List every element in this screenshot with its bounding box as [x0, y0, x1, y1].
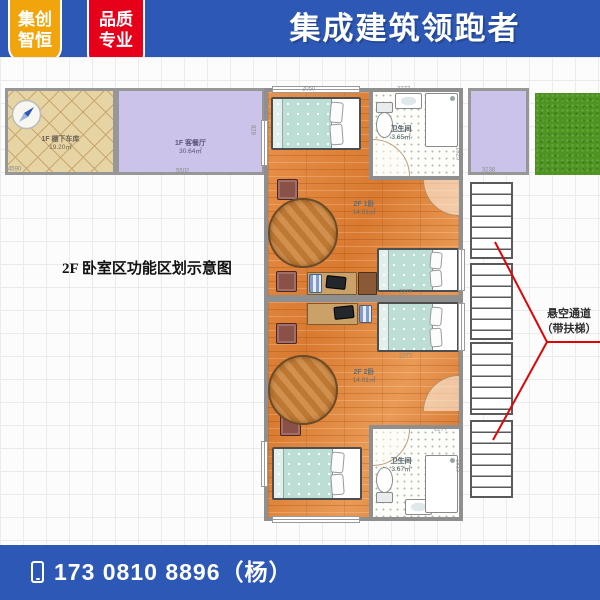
- dim-label: 2277: [399, 289, 412, 295]
- walkway-annotation: 悬空通道 （带扶梯）: [539, 307, 599, 337]
- bathroom-upper-label: 卫生间 3.65㎡: [377, 125, 425, 143]
- phone-button-dot: [36, 578, 40, 580]
- stairs-segment: [470, 182, 513, 259]
- room-bedroom2-label: 2F 2卧 14.01㎡: [326, 368, 402, 386]
- bed-lower-left: [272, 447, 362, 500]
- window: [272, 516, 360, 523]
- bathroom-lower-label: 卫生间 3.67㎡: [377, 457, 425, 475]
- chair: [277, 179, 298, 200]
- purple-strip: [468, 88, 529, 175]
- dim-label: 1825: [455, 459, 461, 472]
- footer-bar: 173 0810 8896（杨）: [0, 545, 600, 600]
- bed-fold: [379, 304, 389, 350]
- bed-pillow: [429, 306, 443, 326]
- floorplan-canvas: 2F 卧室区功能区划示意图 1F 棚下车库 19.20㎡ 1F 客餐厅 30.6…: [0, 57, 600, 545]
- door-arc-bedroom2: [423, 375, 459, 411]
- desk-chair: [359, 305, 372, 323]
- bed-pillow: [330, 451, 345, 473]
- dim-label: 2277: [434, 426, 447, 432]
- window: [458, 249, 465, 291]
- bed-upper-right: [377, 248, 459, 292]
- stairs-segment: [470, 263, 513, 340]
- bed-pillow: [329, 101, 344, 123]
- round-table: [268, 355, 338, 425]
- badge-line: 智恒: [10, 30, 60, 51]
- window: [458, 303, 465, 351]
- laptop-icon: [325, 275, 346, 290]
- shower-icon: [425, 455, 458, 513]
- room-living-label: 1F 客餐厅 30.64㎡: [119, 139, 262, 157]
- bed-lower-right: [377, 302, 459, 352]
- nightstand: [358, 272, 377, 295]
- dim-label: 3238: [482, 167, 495, 173]
- door-arc-bath-upper: [373, 139, 410, 176]
- brand-badge-jichuang: 集创 智恒: [8, 0, 62, 62]
- divider-wall: [268, 295, 459, 302]
- door-arc-bedroom1: [423, 180, 459, 216]
- room-carport: 1F 棚下车库 19.20㎡: [5, 88, 116, 175]
- badge-line: 集创: [10, 9, 60, 30]
- desk-chair: [309, 274, 322, 293]
- stairs-segment: [470, 420, 513, 498]
- bathroom-upper: 卫生间 3.65㎡: [369, 92, 459, 180]
- plan-caption: 2F 卧室区功能区划示意图: [62, 257, 232, 278]
- window: [272, 86, 360, 93]
- bed-pillow: [329, 124, 344, 145]
- sink-icon: [395, 93, 422, 109]
- room-bedroom1-label: 2F 1卧 14.01㎡: [326, 200, 402, 218]
- dim-label: 828: [250, 125, 256, 135]
- bed-fold: [273, 99, 283, 148]
- dim-label: 5502: [176, 168, 189, 174]
- dim-label: 4590: [8, 166, 21, 172]
- window: [261, 441, 268, 487]
- dim-label: 2277: [399, 353, 412, 359]
- dim-label: 2277: [397, 86, 410, 92]
- phone-number: 173 0810 8896（杨）: [54, 545, 293, 600]
- stairs-segment: [470, 342, 513, 415]
- bed-upper-left: [271, 97, 361, 150]
- showerhead-icon: [450, 96, 455, 101]
- toilet-tank: [376, 492, 393, 503]
- bathroom-lower: 卫生间 3.67㎡: [369, 425, 459, 517]
- shower-icon: [425, 93, 458, 147]
- header-title: 集成建筑领跑者: [245, 0, 565, 57]
- bed-pillow: [429, 270, 442, 288]
- bed-pillow: [429, 327, 442, 347]
- chair: [276, 323, 297, 344]
- window: [261, 120, 268, 166]
- bed-fold: [379, 250, 389, 290]
- bed-pillow: [330, 474, 345, 495]
- badge-line: 专业: [89, 30, 143, 51]
- room-carport-label: 1F 棚下车库 19.20㎡: [8, 135, 113, 153]
- room-living: 1F 客餐厅 30.64㎡: [116, 88, 265, 175]
- dim-label: 1825: [455, 147, 461, 160]
- chair: [276, 271, 297, 292]
- grass-patch: [535, 93, 600, 175]
- bed-pillow: [429, 252, 443, 270]
- phone-icon: [31, 561, 44, 583]
- compass-icon: [11, 99, 42, 130]
- building-2f: 卫生间 3.65㎡ 2F 1卧 14.01㎡: [264, 88, 463, 521]
- laptop-icon: [333, 305, 354, 320]
- dim-label: 2050: [302, 86, 315, 92]
- badge-line: 品质: [89, 9, 143, 30]
- bed-fold: [274, 449, 284, 498]
